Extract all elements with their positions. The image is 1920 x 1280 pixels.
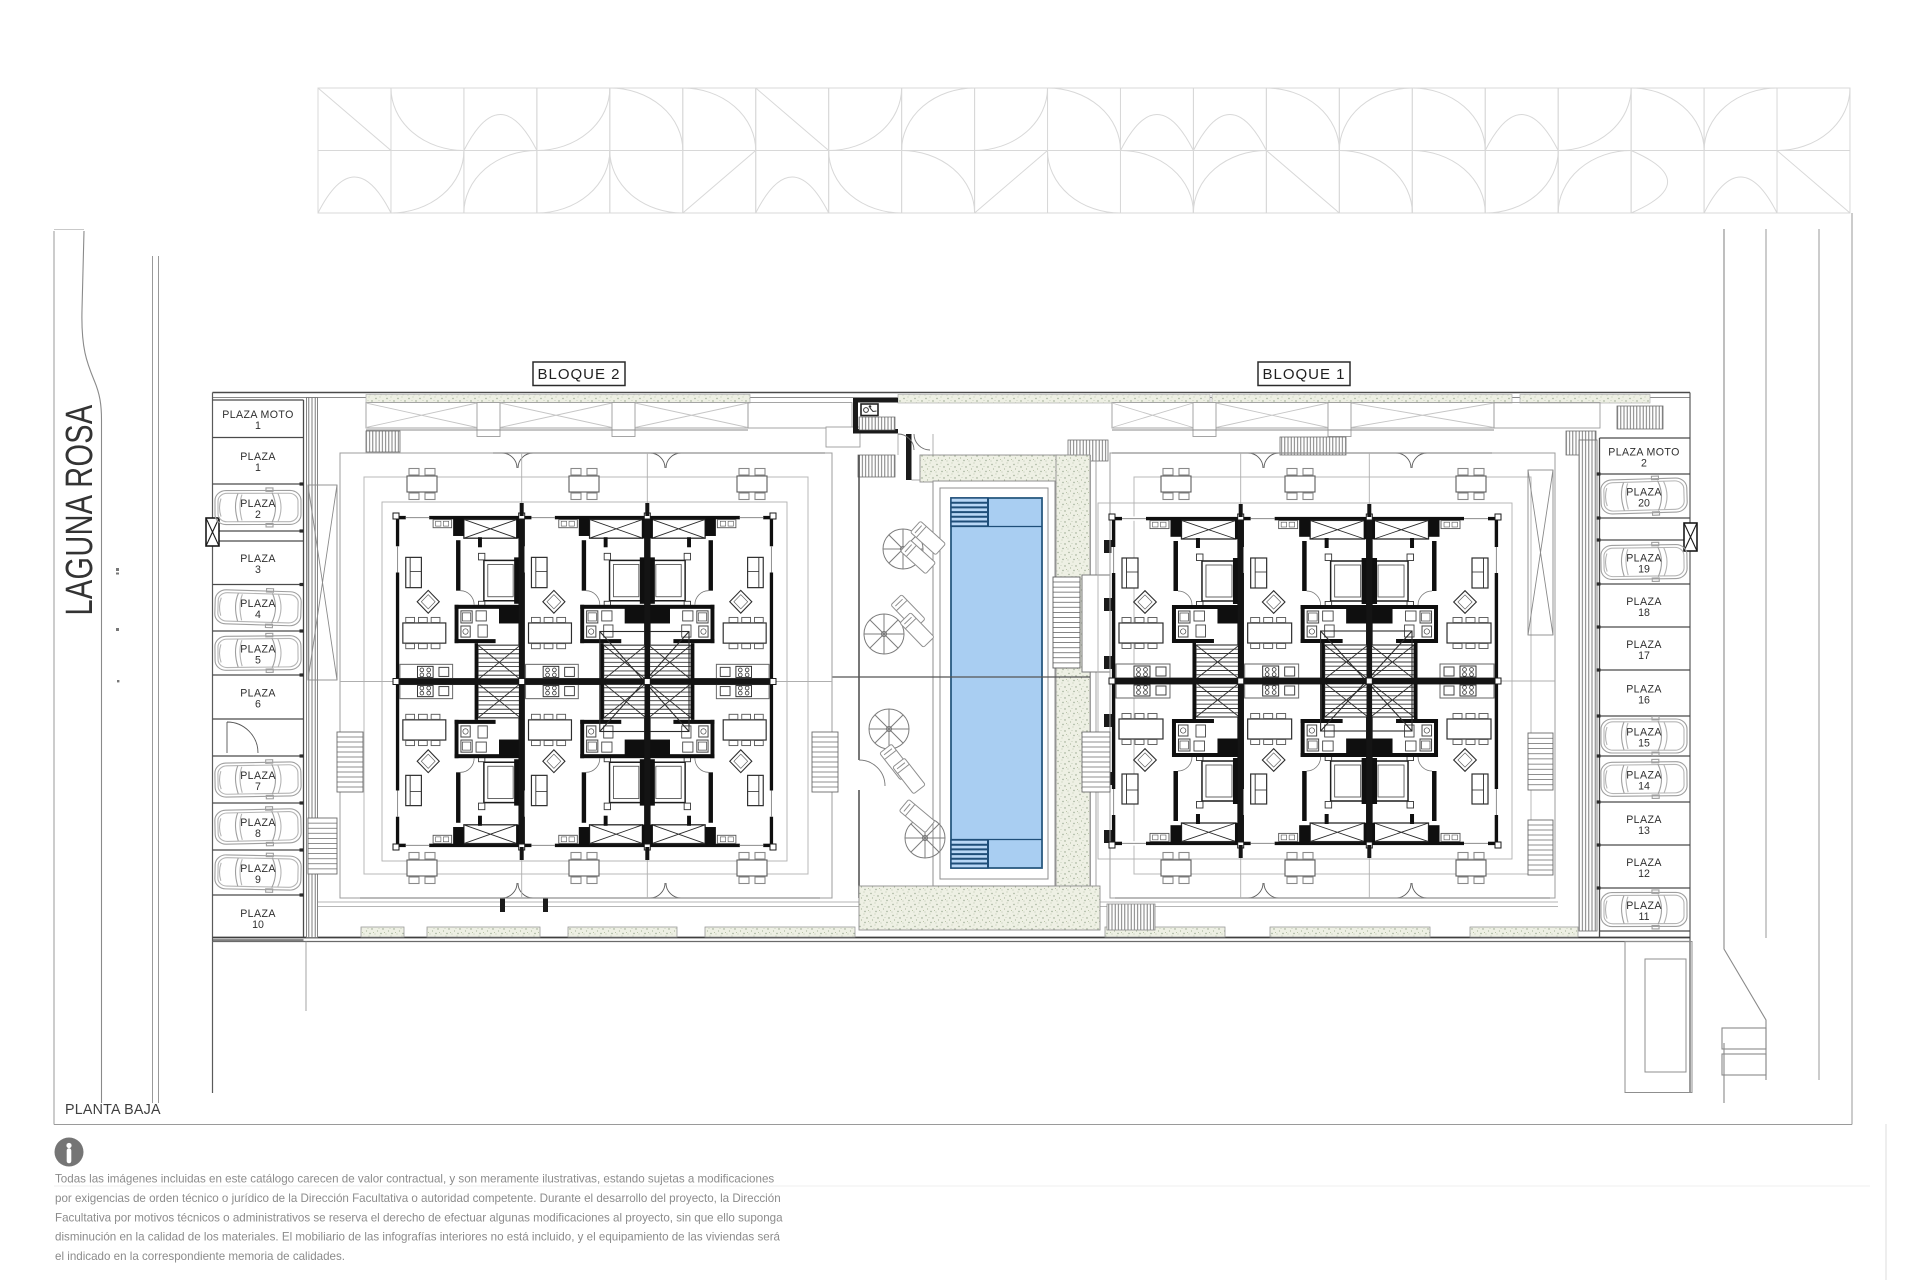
svg-text:por exigencias de orden técni: por exigencias de orden técnico o jurídi… [55,1192,781,1205]
svg-text:9: 9 [255,874,261,886]
svg-text:13: 13 [1638,825,1650,837]
svg-text:PLANTA BAJA: PLANTA BAJA [65,1102,161,1118]
svg-text:disminución en la calidad de: disminución en la calidad de los materia… [55,1231,781,1244]
svg-text:5: 5 [255,655,261,667]
svg-text:18: 18 [1638,607,1650,619]
svg-text:12: 12 [1638,868,1650,880]
svg-text:Todas las imágenes incluidas e: Todas las imágenes incluidas en este cat… [55,1173,774,1186]
svg-text:4: 4 [255,609,261,621]
svg-text:6: 6 [255,699,261,711]
svg-text:19: 19 [1638,564,1650,576]
svg-text:11: 11 [1639,911,1650,923]
svg-text:el indicado en la correspondie: el indicado en la correspondiente memori… [55,1250,345,1263]
svg-text:BLOQUE 1: BLOQUE 1 [1262,366,1345,383]
svg-text:1: 1 [255,462,261,474]
svg-text:16: 16 [1638,695,1650,707]
svg-text:LAGUNA ROSA: LAGUNA ROSA [58,404,101,615]
svg-text:10: 10 [252,919,264,931]
svg-text:15: 15 [1638,738,1650,750]
svg-text:7: 7 [255,781,261,793]
svg-text:8: 8 [255,828,261,840]
svg-text:3: 3 [255,564,261,576]
svg-text:20: 20 [1638,498,1650,510]
svg-text:2: 2 [255,509,261,521]
svg-text:1: 1 [255,420,261,432]
svg-text:14: 14 [1638,781,1650,793]
svg-text:Facultativa por motivos técnic: Facultativa por motivos técnicos o admin… [55,1211,783,1224]
svg-text:BLOQUE 2: BLOQUE 2 [537,366,620,383]
svg-text:2: 2 [1641,458,1647,470]
svg-text:17: 17 [1638,650,1650,662]
